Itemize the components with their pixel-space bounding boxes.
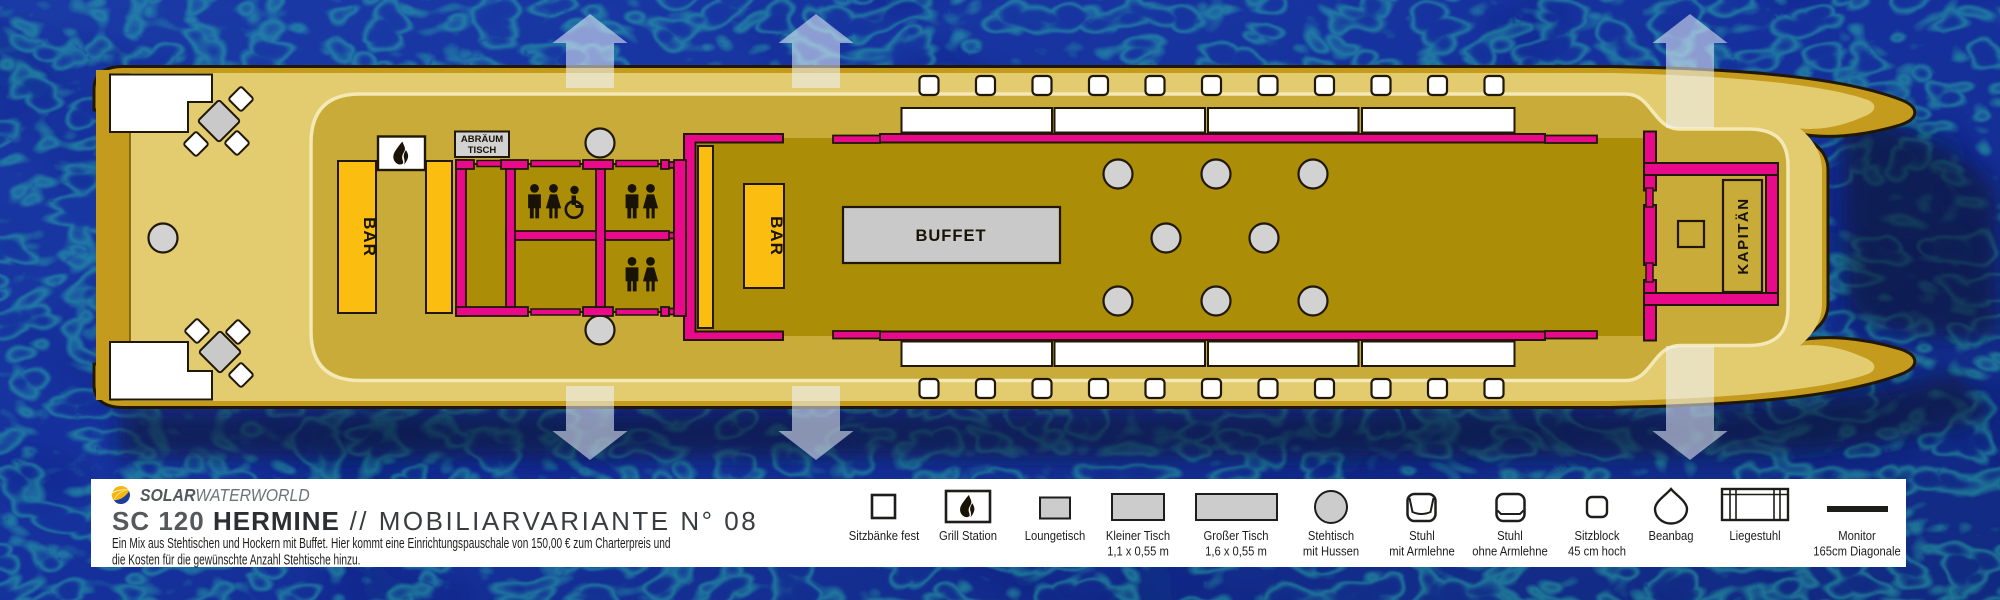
svg-text:mit Hussen: mit Hussen — [1303, 544, 1359, 559]
svg-text:SC 120 HERMINE // MOBILIARVARI: SC 120 HERMINE // MOBILIARVARIANTE N° 08 — [112, 506, 758, 536]
svg-text:ohne Armlehne: ohne Armlehne — [1472, 544, 1548, 559]
svg-text:Stuhl: Stuhl — [1497, 528, 1523, 543]
svg-text:Grill Station: Grill Station — [939, 528, 997, 543]
svg-text:ABRÄUM: ABRÄUM — [461, 134, 503, 145]
svg-text:Loungetisch: Loungetisch — [1025, 528, 1086, 543]
svg-text:mit Armlehne: mit Armlehne — [1389, 544, 1455, 559]
svg-text:Sitzbänke fest: Sitzbänke fest — [849, 528, 920, 543]
svg-text:45 cm hoch: 45 cm hoch — [1568, 544, 1626, 559]
svg-text:Liegestuhl: Liegestuhl — [1729, 528, 1780, 543]
svg-text:165cm Diagonale: 165cm Diagonale — [1813, 544, 1901, 559]
svg-text:Kleiner Tisch: Kleiner Tisch — [1106, 528, 1170, 543]
svg-text:BUFFET: BUFFET — [915, 227, 986, 245]
svg-text:Sitzblock: Sitzblock — [1575, 528, 1620, 543]
svg-text:1,1 x 0,55 m: 1,1 x 0,55 m — [1107, 544, 1169, 559]
svg-text:Stuhl: Stuhl — [1409, 528, 1435, 543]
svg-text:Beanbag: Beanbag — [1649, 528, 1694, 543]
svg-text:Monitor: Monitor — [1838, 528, 1876, 543]
svg-text:Ein Mix aus Stehtischen und Ho: Ein Mix aus Stehtischen und Hockern mit … — [112, 534, 671, 552]
svg-text:Stehtisch: Stehtisch — [1308, 528, 1354, 543]
svg-text:Großer Tisch: Großer Tisch — [1204, 528, 1269, 543]
svg-text:1,6 x 0,55 m: 1,6 x 0,55 m — [1205, 544, 1267, 559]
svg-text:SOLARWATERWORLD: SOLARWATERWORLD — [140, 485, 310, 505]
svg-text:KAPITÄN: KAPITÄN — [1735, 197, 1752, 274]
svg-text:BAR: BAR — [767, 216, 786, 256]
svg-text:TISCH: TISCH — [468, 145, 497, 156]
svg-text:BAR: BAR — [360, 217, 379, 257]
svg-text:die Kosten für die gewünschte: die Kosten für die gewünschte Anzahl Ste… — [112, 550, 360, 568]
